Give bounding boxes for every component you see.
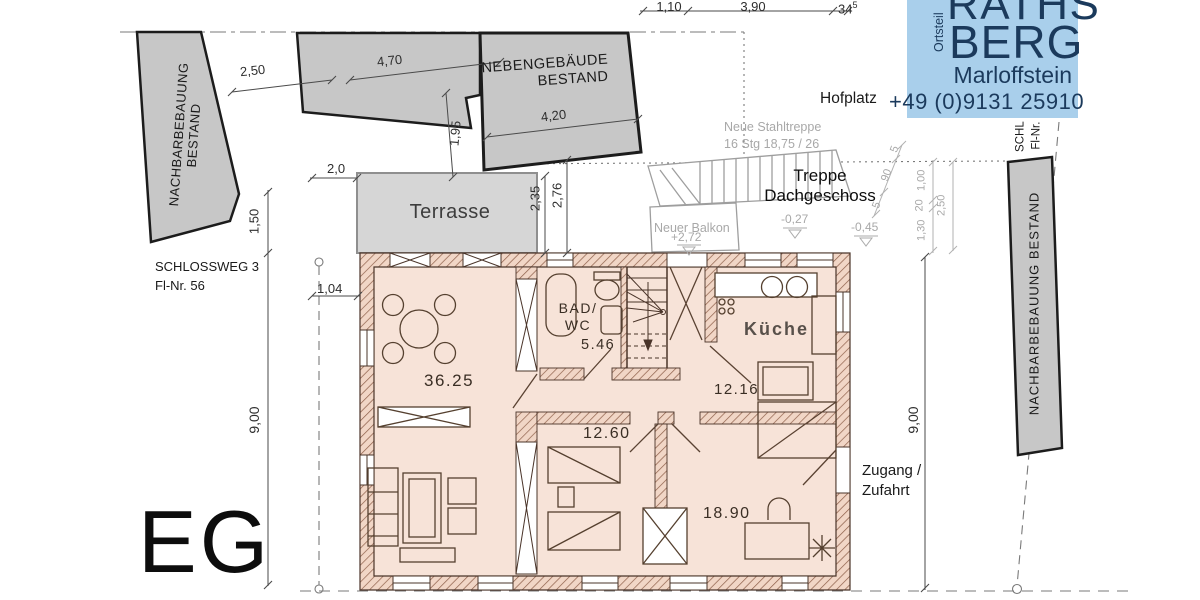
logo-phone: +49 (0)9131 25910 xyxy=(889,89,1084,114)
kitchen-counter xyxy=(715,273,817,297)
terrace-label: Terrasse xyxy=(394,201,506,224)
hofplatz-label: Hofplatz xyxy=(820,90,877,108)
logo-town: Marloffstein xyxy=(907,62,1072,88)
room2-area-label: 18.90 xyxy=(703,505,751,523)
dim-2-35: 2,35 xyxy=(529,183,544,213)
dim-2-50: 2,50 xyxy=(239,63,266,81)
dim-34-5: 345 xyxy=(838,0,857,17)
floorplan-sheet: NACHBARBEBAUUNG BESTAND NEBENGEBÄUDE BES… xyxy=(0,0,1200,600)
kitchen-label: Küche xyxy=(744,319,809,340)
dim-2-76: 2,76 xyxy=(551,180,566,210)
entrance-door xyxy=(836,447,850,493)
dim-3-90: 3,90 xyxy=(733,0,773,15)
building-plan xyxy=(360,253,850,590)
balcony-level: +2,72 xyxy=(671,231,701,245)
level-b: -0,45 xyxy=(851,221,878,235)
logo-district: Ortsteil xyxy=(932,2,946,62)
dim-2-0: 2,0 xyxy=(327,162,345,177)
dim-9-00-right: 9,00 xyxy=(905,400,921,440)
logo-line2: BERG xyxy=(949,16,1083,69)
living-area-label: 36.25 xyxy=(424,371,474,391)
dim-4-20: 4,20 xyxy=(540,108,567,126)
bath-area-label: 5.46 xyxy=(581,337,615,354)
dim-1-50: 1,50 xyxy=(248,206,263,236)
dim-1-04: 1,04 xyxy=(317,282,342,297)
dining-table xyxy=(400,310,438,348)
bath-label: BAD/ WC xyxy=(552,300,604,334)
neighbor-right-label: NACHBARBEBAUUNG BESTAND xyxy=(1028,143,1043,463)
room1-area-label: 12.60 xyxy=(583,425,631,443)
level-a: -0,27 xyxy=(781,213,808,227)
outbuilding-shape xyxy=(480,33,641,170)
dim-s6: 1,30 xyxy=(916,216,929,244)
dim-s5: 20 xyxy=(914,194,927,216)
dim-1-10: 1,10 xyxy=(650,0,688,15)
dim-s4: 1,00 xyxy=(916,166,929,194)
dim-1-95: 1,95 xyxy=(447,118,464,149)
balcony-door xyxy=(667,253,707,267)
steel-stair-label: Neue Stahltreppe 16 Stg 18,75 / 26 xyxy=(724,119,821,153)
floor-label: EG xyxy=(138,498,271,586)
access-label: Zugang / Zufahrt xyxy=(862,461,921,500)
dim-9-00-left: 9,00 xyxy=(246,400,262,440)
dim-s7: 2,50 xyxy=(936,191,949,219)
street-label: SCHLOSSWEG 3 Fl-Nr. 56 xyxy=(155,258,259,296)
dim-4-70: 4,70 xyxy=(376,53,403,71)
kitchen-area-label: 12.16 xyxy=(714,381,759,398)
